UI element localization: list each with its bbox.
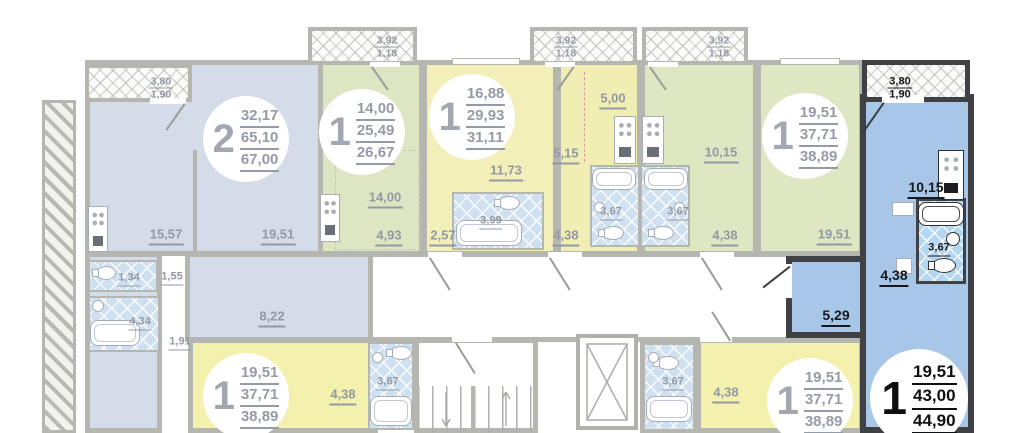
balcony-dimensions: 3,921,18 <box>375 35 399 60</box>
room-area-label: 4,38 <box>552 228 579 247</box>
unit-living-area: 19,51 <box>799 104 839 125</box>
door-opening <box>428 252 462 257</box>
room-area-label: 4,38 <box>711 228 738 247</box>
toilet-icon <box>390 346 412 360</box>
unit-rooms-count: 1 <box>772 116 794 156</box>
room-area-label: 19,51 <box>817 227 852 246</box>
toilet-icon <box>932 258 956 273</box>
unit-total-area: 38,89 <box>240 408 280 429</box>
door-opening <box>452 337 492 342</box>
unit-info-1room-green[interactable]: 1 14,0025,4926,67 <box>319 89 405 175</box>
unit-living-area: 16,88 <box>466 85 506 106</box>
unit-area: 65,10 <box>240 129 280 150</box>
room-area-label: 15,57 <box>149 227 184 246</box>
stove-icon <box>320 194 340 242</box>
room-area-label: 14,00 <box>368 190 403 209</box>
elevator-icon <box>576 334 638 430</box>
room-area-label: 3,67 <box>376 376 399 391</box>
room-area-label: 8,22 <box>258 309 285 328</box>
room-area-label: 3,67 <box>666 206 689 221</box>
balcony-door-opening <box>370 62 400 67</box>
unit-living-area: 14,00 <box>356 100 396 121</box>
sink-icon <box>372 352 383 363</box>
room-area-label: 2,57 <box>429 228 456 247</box>
room-area-label-selected: 5,29 <box>821 307 850 327</box>
unit-rooms-count: 1 <box>329 112 351 152</box>
room-area-label: 5,00 <box>599 91 626 110</box>
unit-living-area: 32,17 <box>240 107 280 128</box>
floor-plan-canvas: 3,801,90 3,921,18 3,921,18 3,921,18 3,80… <box>0 0 1024 433</box>
balcony <box>530 27 637 65</box>
room-area-label-selected: 10,15 <box>907 179 944 199</box>
unit-area: 43,00 <box>912 386 957 409</box>
unit-total-area: 31,11 <box>466 129 505 150</box>
unit-area: 25,49 <box>356 122 396 143</box>
bathtub-icon <box>644 168 688 190</box>
unit-living-area: 19,51 <box>804 369 844 390</box>
unit-living-area: 19,51 <box>240 364 280 385</box>
unit-total-area: 38,89 <box>804 413 844 433</box>
unit-total-area: 67,00 <box>240 151 280 172</box>
room-area-label: 4,38 <box>712 385 739 404</box>
unit-total-area: 44,90 <box>912 411 957 433</box>
unit-area: 29,93 <box>466 107 506 128</box>
room-area-label: 4,93 <box>375 228 402 247</box>
stove-icon <box>88 206 108 252</box>
unit-rooms-count: 2 <box>213 119 235 159</box>
bathtub-icon <box>646 396 692 422</box>
room-area-label: 4,34 <box>128 316 151 331</box>
room-area-label: 4,38 <box>329 387 356 406</box>
unit-info-1room-yellow[interactable]: 1 16,8829,9331,11 <box>429 74 515 160</box>
balcony-dimensions: 3,921,18 <box>707 35 731 60</box>
unit-rooms-count: 1 <box>777 381 799 421</box>
room-area-label: 1,55 <box>160 271 183 286</box>
unit-rooms-count: 1 <box>213 376 235 416</box>
unit-rooms-count: 1 <box>881 375 907 421</box>
balcony-dimensions: 3,921,18 <box>554 35 578 60</box>
unit-2room-hall[interactable] <box>185 252 380 342</box>
unit-info-selected[interactable]: 1 19,5143,0044,90 <box>870 349 968 433</box>
unit-total-area: 38,89 <box>799 148 839 169</box>
unit-area: 37,71 <box>799 126 839 147</box>
toilet-icon <box>96 266 116 280</box>
door-opening <box>700 252 734 257</box>
room-area-label-selected: 4,38 <box>879 267 908 287</box>
toilet-icon <box>652 226 674 240</box>
room-area-label: 1,34 <box>117 272 140 287</box>
stove-icon <box>614 116 636 164</box>
bathtub-icon <box>918 202 964 226</box>
window <box>780 58 840 65</box>
room-area-label: 10,15 <box>704 145 739 164</box>
partition-wall <box>193 150 197 254</box>
zone-divider-line <box>584 72 587 162</box>
room-area-label-selected: 3,67 <box>927 242 950 257</box>
sink-icon <box>92 300 104 312</box>
unit-info-bottom-left[interactable]: 1 19,5137,7138,89 <box>203 353 289 433</box>
window <box>452 58 520 65</box>
adjacent-wall-hatch <box>42 100 76 433</box>
toilet-icon <box>498 196 520 210</box>
unit-info-1room-green-right[interactable]: 1 19,5137,7138,89 <box>762 93 848 179</box>
stove-icon <box>642 116 664 164</box>
unit-area: 37,71 <box>240 386 280 407</box>
common-corridor <box>368 252 796 342</box>
washer-icon <box>892 202 914 216</box>
unit-area: 37,71 <box>804 391 844 412</box>
room-area-label: 3,99 <box>479 215 502 230</box>
balcony-dimensions-selected: 3,801,90 <box>887 76 912 101</box>
unit-rooms-count: 1 <box>439 97 461 137</box>
balcony-door-opening <box>648 62 678 67</box>
bathtub-icon <box>592 168 636 190</box>
toilet-icon <box>602 226 624 240</box>
room-area-label: 19,51 <box>261 227 296 246</box>
bathtub-icon <box>370 396 412 426</box>
unit-total-area: 26,67 <box>356 144 396 165</box>
sink-icon <box>648 352 659 363</box>
balcony <box>642 27 748 65</box>
toilet-icon <box>657 356 679 370</box>
stairs-arrows-icon <box>418 386 534 433</box>
balcony-dimensions: 3,801,90 <box>149 76 173 101</box>
door-opening <box>548 252 582 257</box>
unit-living-area: 19,51 <box>912 362 957 385</box>
balcony <box>85 64 192 102</box>
unit-info-2room[interactable]: 2 32,1765,1067,00 <box>203 96 289 182</box>
unit-info-bottom-mid[interactable]: 1 19,5137,7138,89 <box>767 358 853 433</box>
room-area-label: 1,91 <box>168 336 191 351</box>
room-area-label: 11,73 <box>489 163 523 182</box>
room-area-label: 5,15 <box>552 146 579 165</box>
room-area-label: 3,67 <box>599 206 622 221</box>
room-area-label: 3,67 <box>661 376 684 391</box>
balcony-door-opening <box>545 62 575 67</box>
balcony <box>308 27 417 65</box>
